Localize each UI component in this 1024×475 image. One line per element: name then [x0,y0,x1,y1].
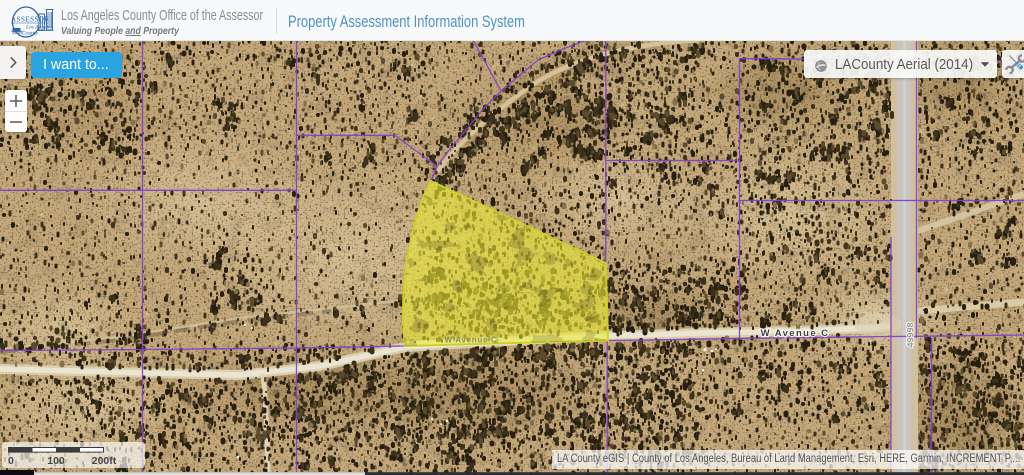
svg-text:W Avenue C: W Avenue C [444,336,497,345]
svg-text:200ft: 200ft [92,455,117,467]
svg-text:49998: 49998 [906,322,916,347]
svg-text:County: County [22,31,38,37]
svg-text:100: 100 [47,455,65,467]
svg-text:ASSESSOR: ASSESSOR [11,16,50,24]
svg-text:0: 0 [8,455,14,467]
svg-text:W Avenue C: W Avenue C [761,328,830,339]
